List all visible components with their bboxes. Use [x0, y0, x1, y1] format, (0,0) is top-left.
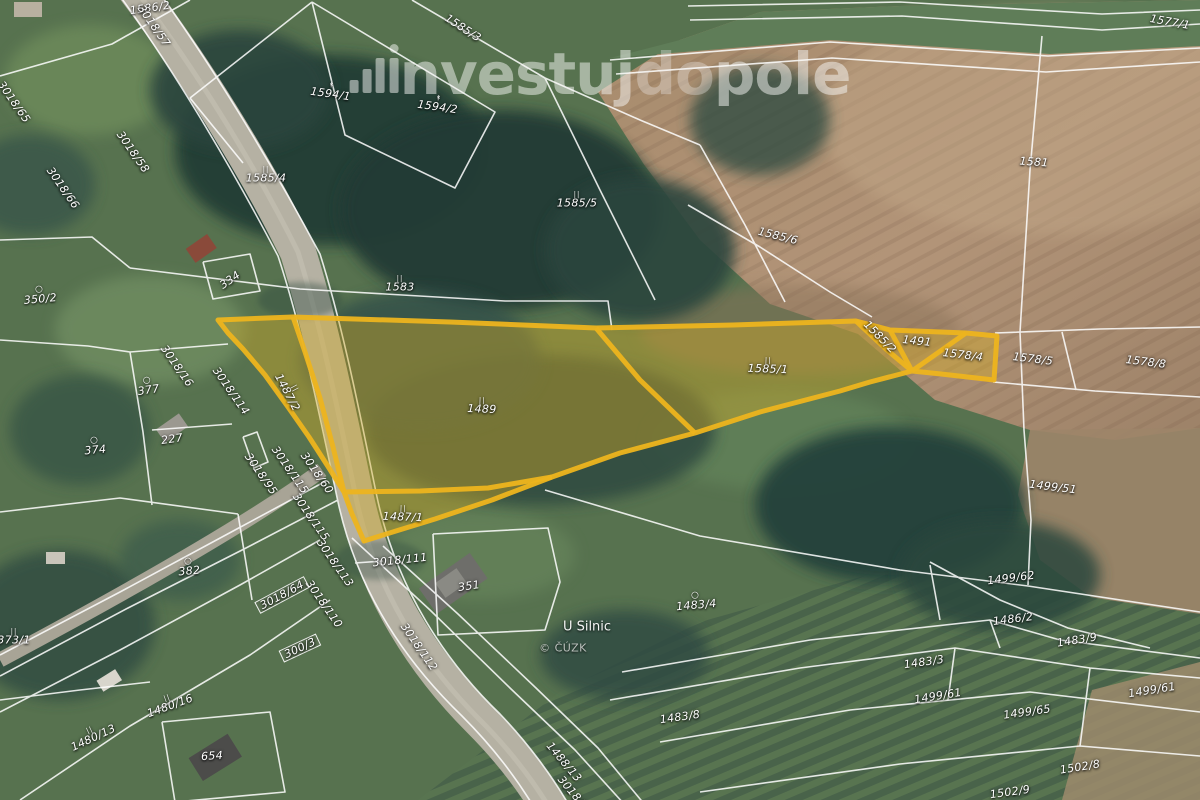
copyright-label: © ČÚZK: [539, 642, 587, 655]
grass-patch: [55, 275, 245, 385]
place-label: U Silnic: [563, 620, 611, 635]
cadastral-map-view[interactable]: 1586/21585/31577/1↟1594/1↟1594/23018/573…: [0, 0, 1200, 800]
satellite-map-canvas[interactable]: [0, 0, 1200, 800]
grass-patch: [5, 25, 175, 135]
building-shed: [46, 552, 65, 564]
building-topleft: [14, 2, 42, 17]
